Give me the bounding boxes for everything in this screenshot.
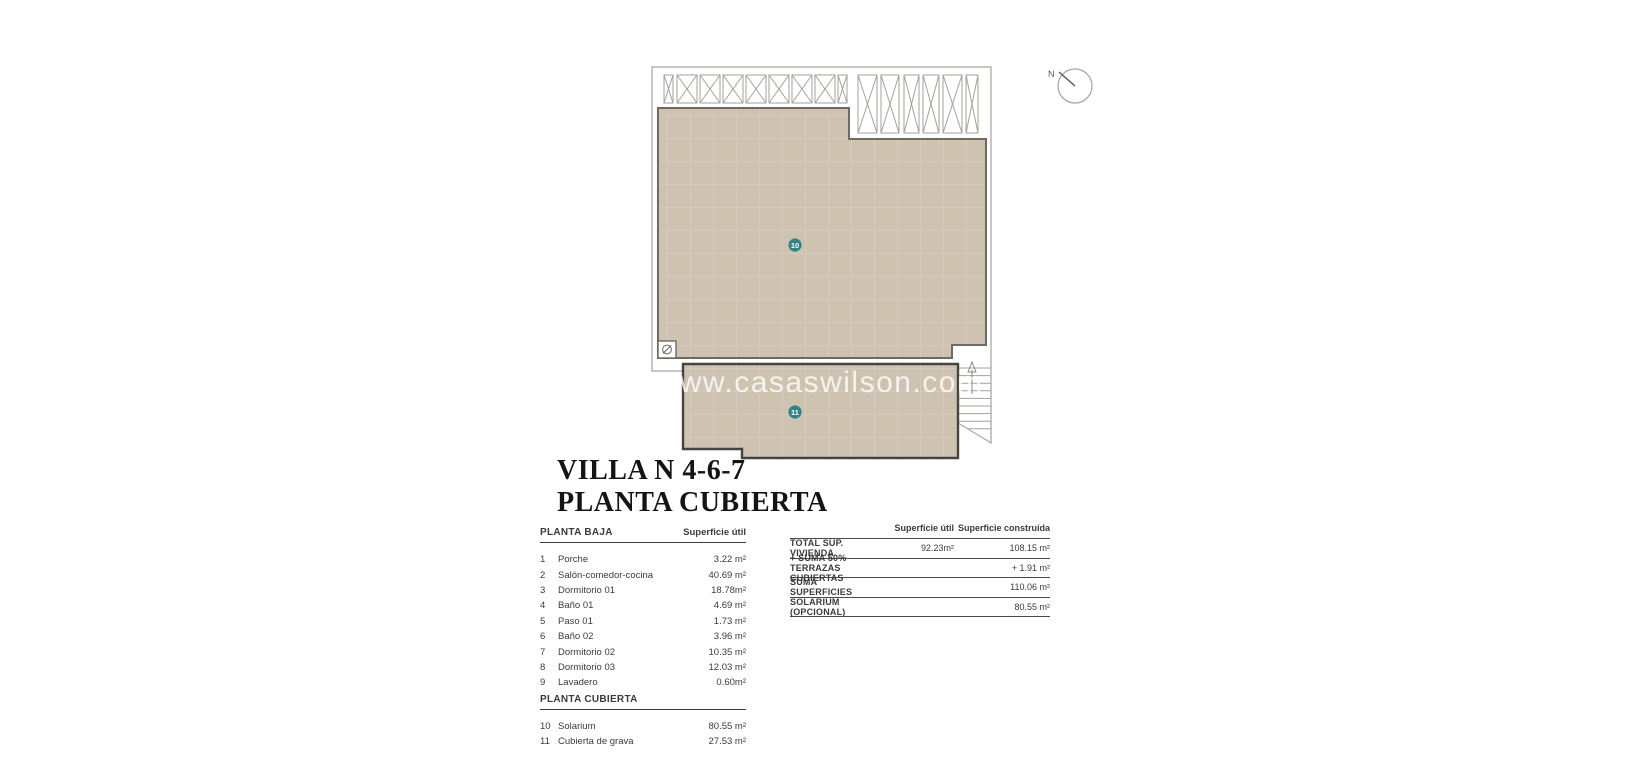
- svg-text:11: 11: [791, 408, 799, 417]
- section-header: PLANTA BAJA: [540, 527, 613, 538]
- north-label: N: [1048, 69, 1055, 79]
- pergola-beams-left: [664, 75, 847, 103]
- table-row: 11 Cubierta de grava 27.53 m²: [540, 734, 746, 749]
- column-header-superficie-util: Superficie útil: [683, 527, 746, 538]
- table-row: 7 Dormitorio 02 10.35 m²: [540, 644, 746, 659]
- title-floor: PLANTA CUBIERTA: [557, 487, 828, 519]
- table-row: 6 Baño 02 3.96 m²: [540, 629, 746, 644]
- pergola-beams-right: [858, 75, 978, 133]
- badge-solarium: 10: [788, 238, 801, 251]
- table-row: 8 Dormitorio 03 12.03 m²: [540, 660, 746, 675]
- section-header: PLANTA CUBIERTA: [540, 694, 638, 705]
- areas-table-header-cubierta: PLANTA CUBIERTA: [540, 694, 746, 710]
- planta-baja-rows: 1 Porche 3.22 m² 2 Salón-comedor-cocina …: [540, 552, 746, 691]
- floorplan-page: www.casaswilson.com 10 11 N VILLA N 4-6-…: [0, 0, 1638, 773]
- table-row: + SUMA 50% TERRAZAS CUBIERTAS + 1.91 m²: [790, 559, 1050, 579]
- column-header-superficie-util: Superficie útil: [880, 523, 954, 533]
- vent-icon: [658, 341, 676, 358]
- table-row: 2 Salón-comedor-cocina 40.69 m²: [540, 567, 746, 582]
- table-row: 1 Porche 3.22 m²: [540, 552, 746, 567]
- summary-table-header: Superficie útil Superficie construída: [790, 523, 1050, 539]
- column-header-superficie-construida: Superficie construída: [954, 523, 1050, 533]
- table-row: SUMA SUPERFICIES 110.06 m²: [790, 578, 1050, 598]
- surface-summary-table: Superficie útil Superficie construída TO…: [790, 523, 1050, 617]
- table-row: SOLARIUM (OPCIONAL) 80.55 m²: [790, 598, 1050, 618]
- title-villa: VILLA N 4-6-7: [557, 455, 828, 487]
- solarium-area: [658, 108, 986, 358]
- floorplan-drawing: www.casaswilson.com 10 11 N: [600, 50, 1100, 470]
- table-row: 5 Paso 01 1.73 m²: [540, 614, 746, 629]
- table-row: 3 Dormitorio 01 18.78m²: [540, 583, 746, 598]
- svg-text:10: 10: [791, 241, 799, 250]
- watermark: www.casaswilson.com: [656, 366, 984, 399]
- badge-gravel: 11: [788, 405, 801, 418]
- table-row: 10 Solarium 80.55 m²: [540, 719, 746, 734]
- planta-cubierta-rows: 10 Solarium 80.55 m² 11 Cubierta de grav…: [540, 719, 746, 750]
- areas-table: PLANTA BAJA Superficie útil 1 Porche 3.2…: [540, 527, 746, 749]
- areas-table-header: PLANTA BAJA Superficie útil: [540, 527, 746, 543]
- table-row: 4 Baño 01 4.69 m²: [540, 598, 746, 613]
- table-row: 9 Lavadero 0.60m²: [540, 675, 746, 690]
- north-compass-icon: N: [1048, 69, 1092, 103]
- page-title: VILLA N 4-6-7 PLANTA CUBIERTA: [557, 455, 828, 519]
